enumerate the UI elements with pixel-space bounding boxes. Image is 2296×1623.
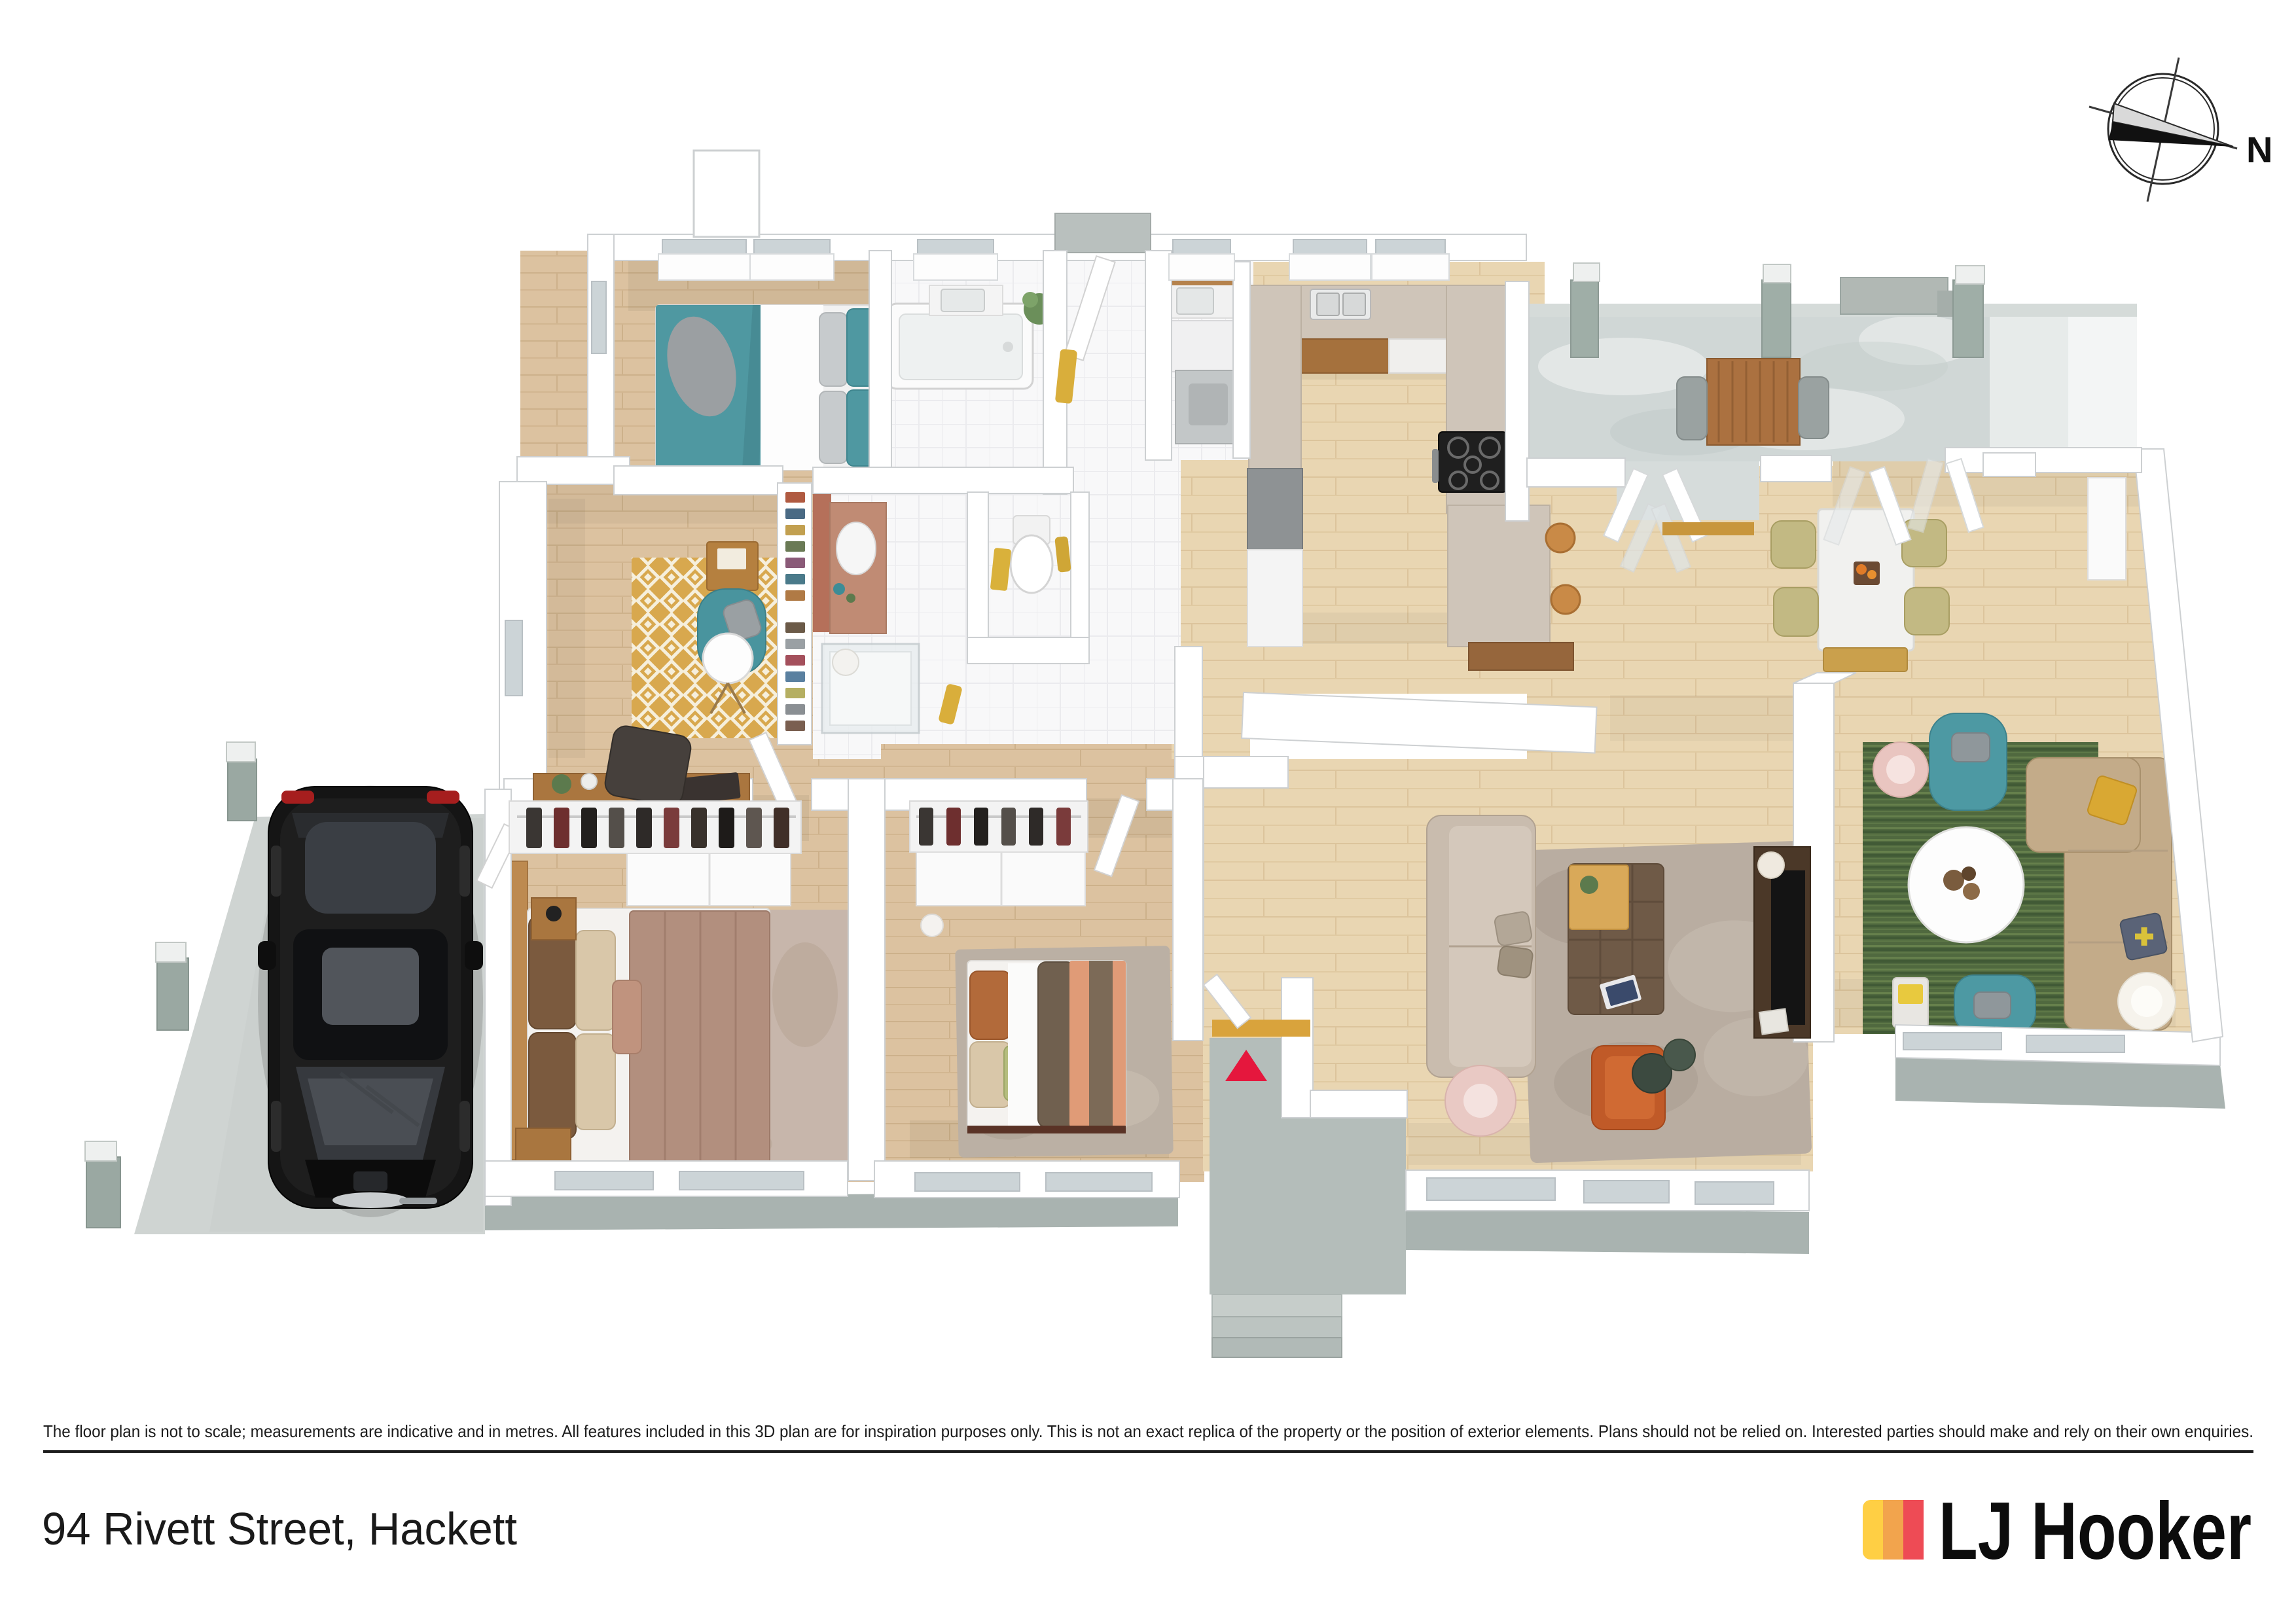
svg-text:94 Rivett Street, Hackett: 94 Rivett Street, Hackett bbox=[42, 1503, 517, 1554]
svg-text:The floor plan is not to scale: The floor plan is not to scale; measurem… bbox=[43, 1421, 2253, 1441]
svg-text:LJ Hooker: LJ Hooker bbox=[1939, 1486, 2251, 1577]
svg-text:N: N bbox=[2246, 129, 2272, 170]
